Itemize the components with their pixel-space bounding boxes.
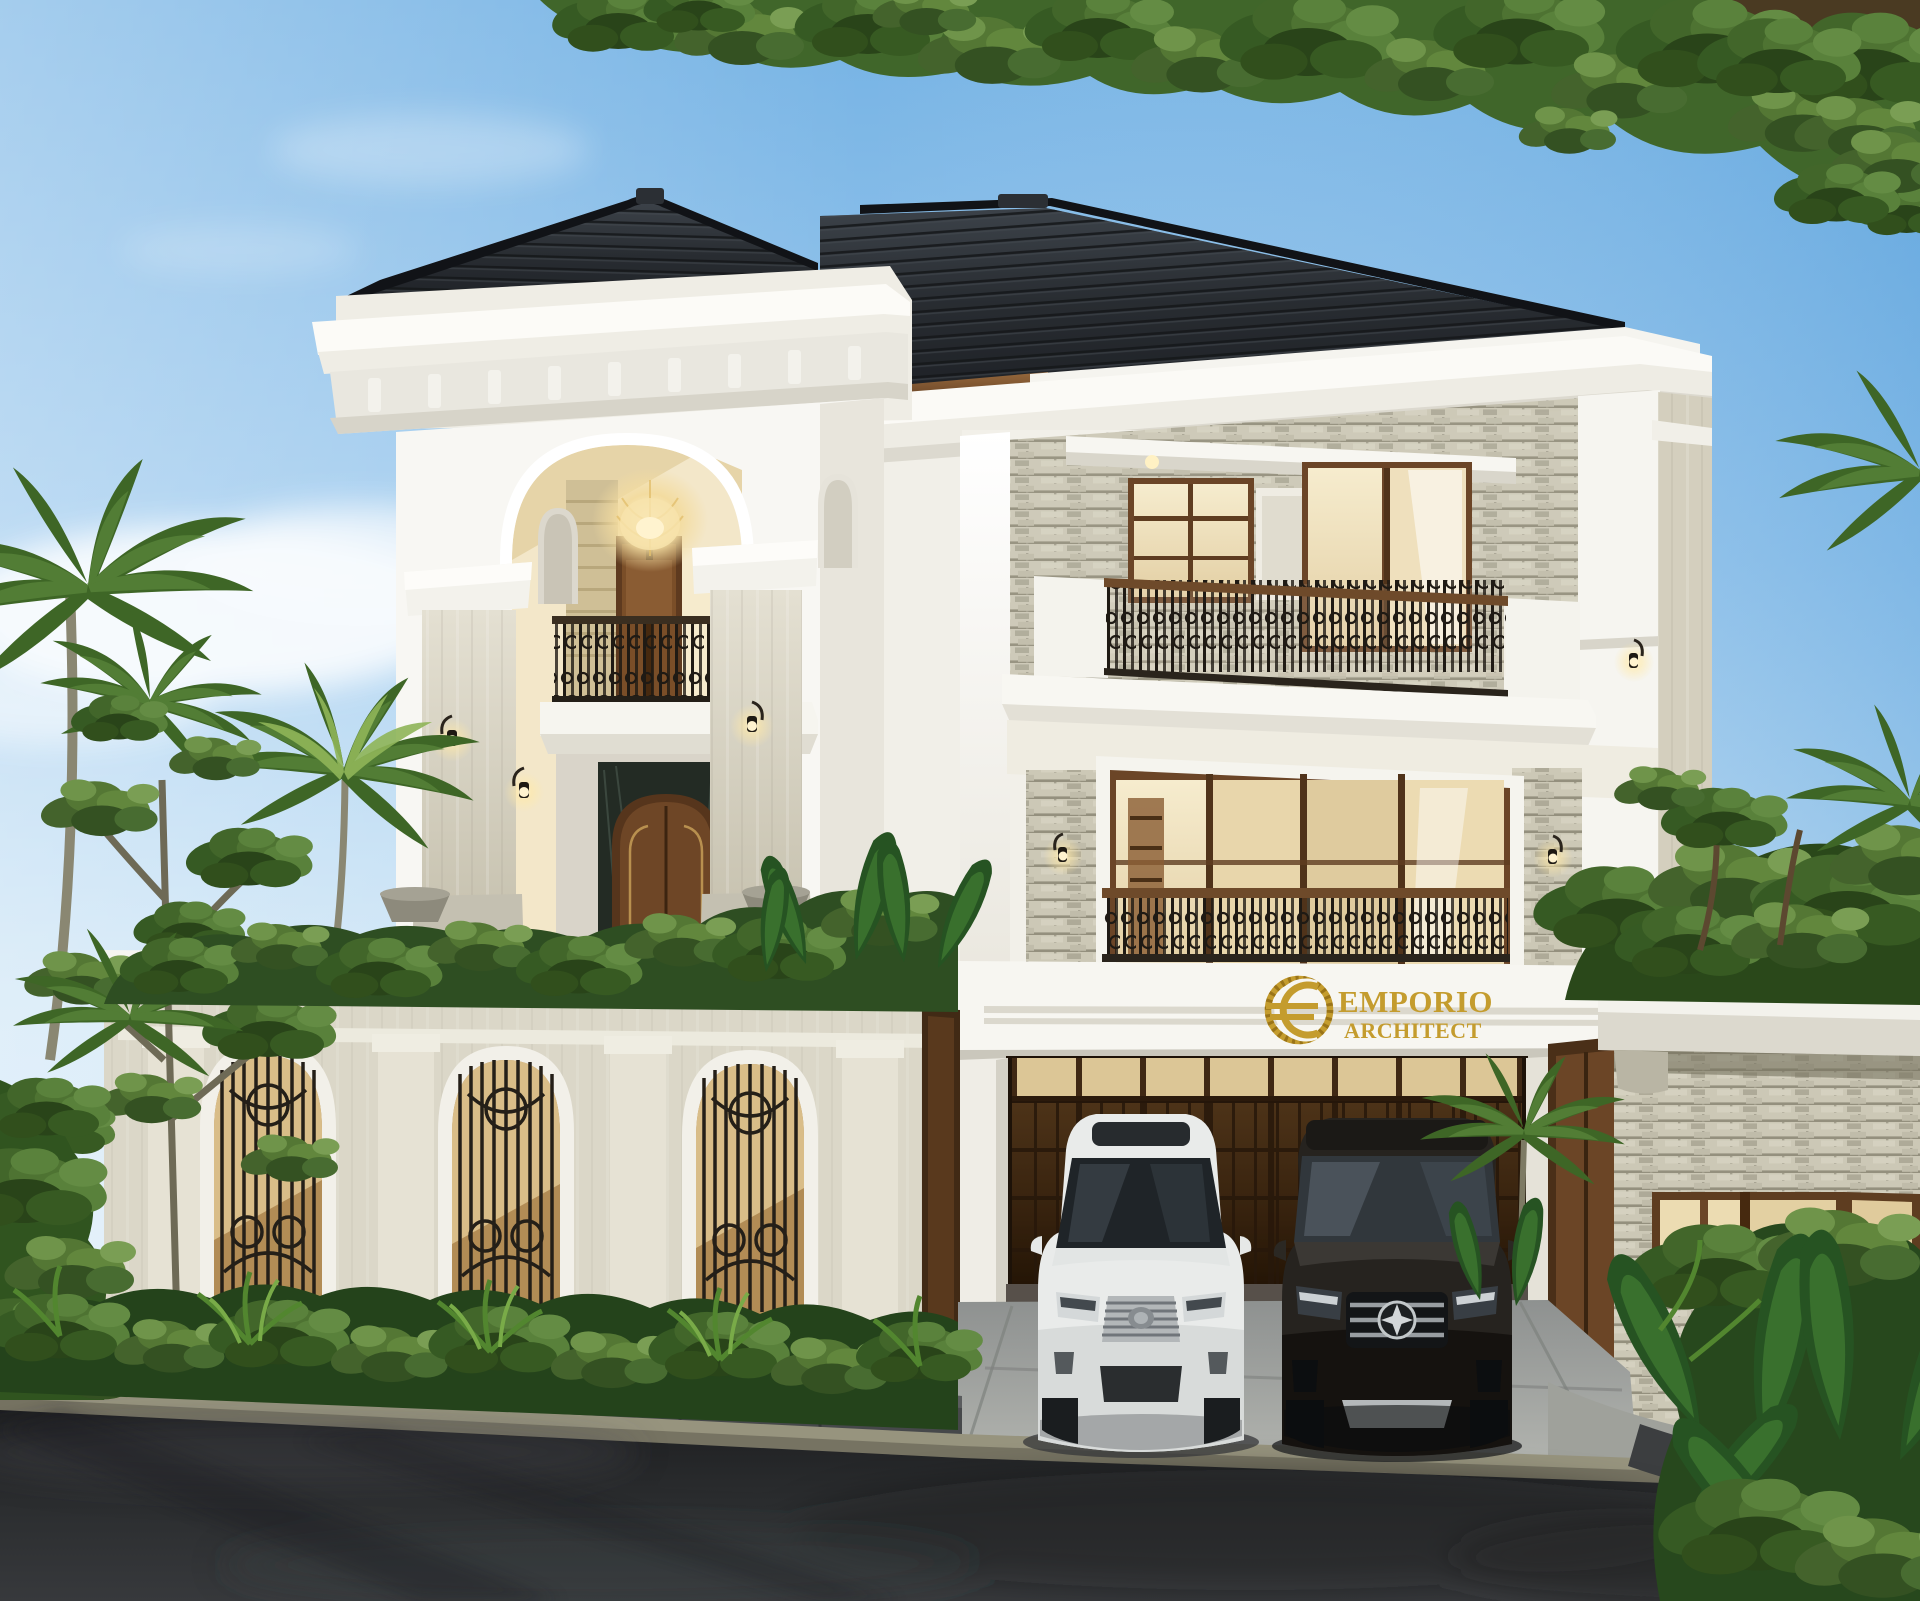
svg-text:EMPORIO: EMPORIO	[1338, 984, 1493, 1019]
svg-text:ARCHITECT: ARCHITECT	[1344, 1018, 1482, 1043]
